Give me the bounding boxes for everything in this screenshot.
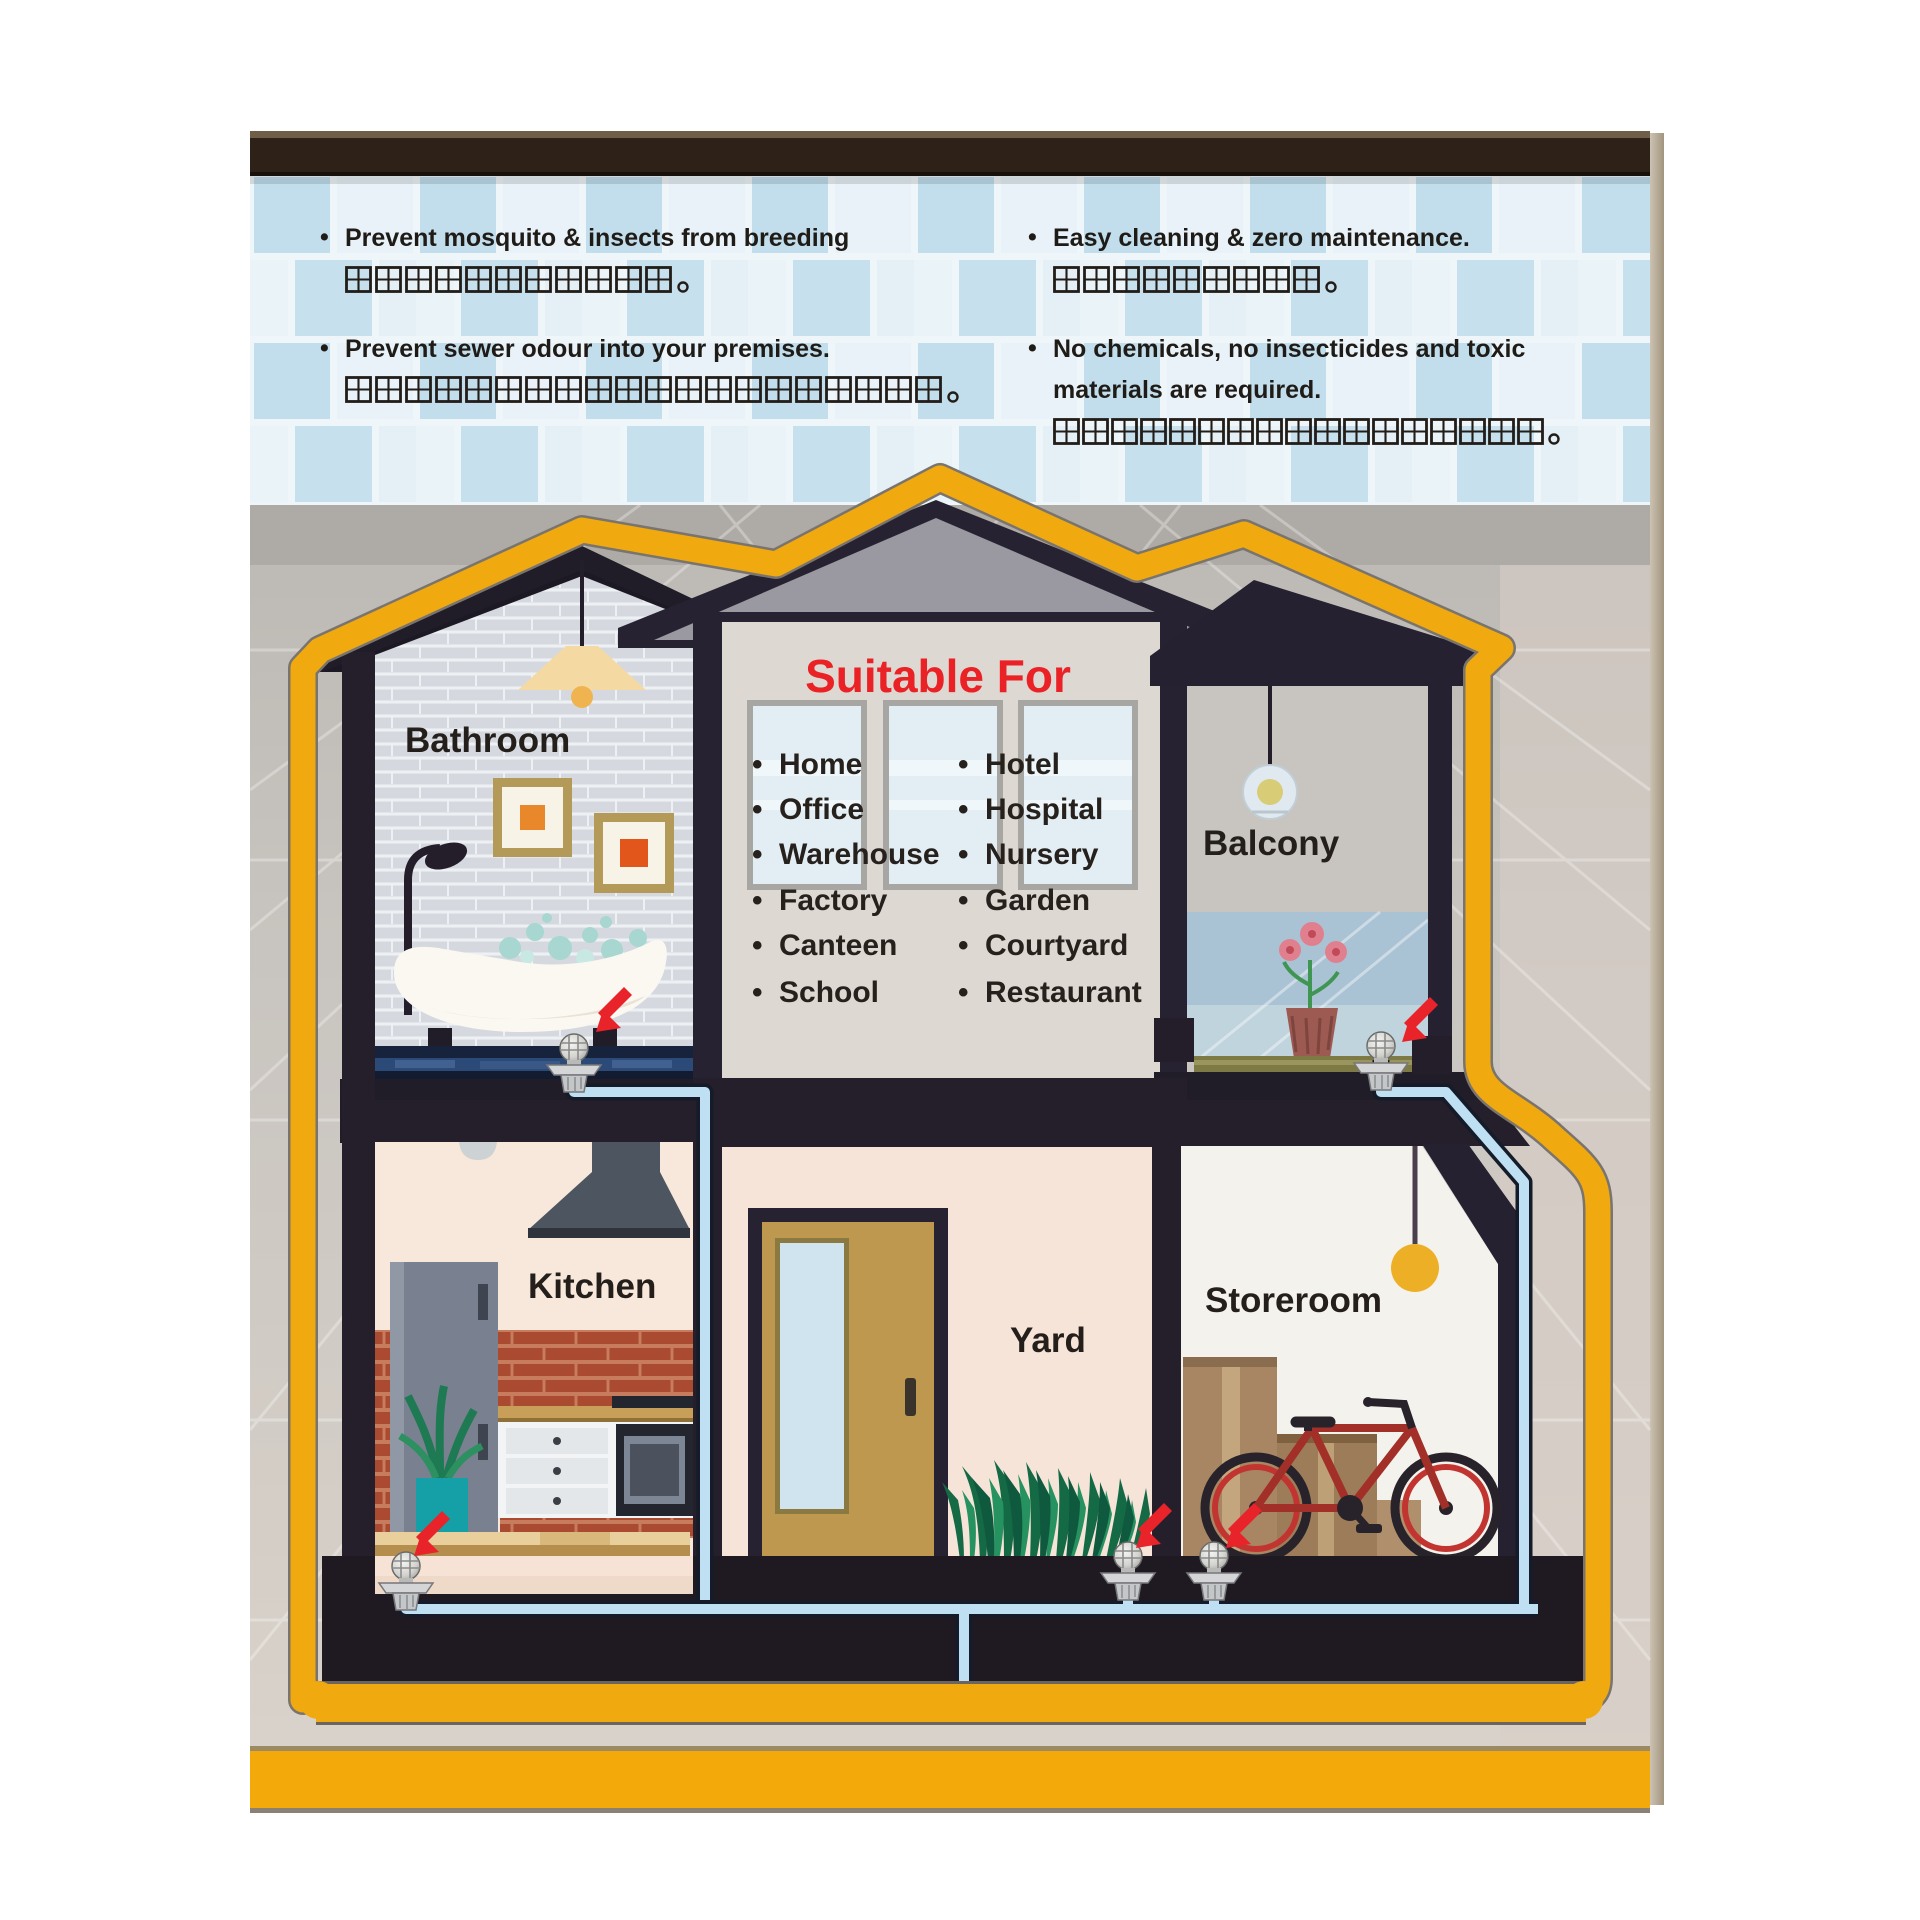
svg-text:•: • [958,793,969,826]
svg-text:•: • [752,838,763,871]
svg-text:Kitchen: Kitchen [528,1267,656,1306]
svg-text:•: • [1028,223,1037,251]
svg-text:•: • [752,793,763,826]
svg-text:Hospital: Hospital [985,793,1103,826]
svg-text:Warehouse: Warehouse [779,838,940,871]
svg-text:•: • [958,929,969,962]
svg-text:•: • [958,976,969,1009]
svg-text:•: • [320,334,329,362]
svg-text:Prevent mosquito & insects fro: Prevent mosquito & insects from breeding [345,224,849,252]
svg-text:Home: Home [779,748,862,781]
svg-text:Suitable For: Suitable For [805,650,1071,702]
svg-text:•: • [752,884,763,917]
svg-text:Yard: Yard [1010,1321,1086,1360]
svg-text:Garden: Garden [985,884,1090,917]
svg-text:materials are required.: materials are required. [1053,376,1321,404]
svg-text:Bathroom: Bathroom [405,721,570,760]
svg-text:Canteen: Canteen [779,929,897,962]
svg-text:•: • [320,223,329,251]
svg-text:School: School [779,976,879,1009]
svg-text:Easy cleaning & zero maintenan: Easy cleaning & zero maintenance. [1053,224,1470,252]
svg-text:No chemicals, no insecticides: No chemicals, no insecticides and toxic [1053,335,1525,363]
svg-text:Factory: Factory [779,884,888,917]
svg-text:•: • [752,929,763,962]
svg-text:Nursery: Nursery [985,838,1099,871]
svg-text:Courtyard: Courtyard [985,929,1128,962]
svg-text:•: • [752,748,763,781]
svg-text:•: • [958,884,969,917]
svg-text:•: • [752,976,763,1009]
svg-text:Prevent sewer odour into your: Prevent sewer odour into your premises. [345,335,830,363]
svg-text:Balcony: Balcony [1203,824,1340,863]
svg-text:Hotel: Hotel [985,748,1060,781]
svg-text:•: • [958,748,969,781]
svg-text:Storeroom: Storeroom [1205,1281,1382,1320]
svg-text:•: • [958,838,969,871]
svg-text:Office: Office [779,793,864,826]
svg-text:•: • [1028,334,1037,362]
svg-text:Restaurant: Restaurant [985,976,1142,1009]
